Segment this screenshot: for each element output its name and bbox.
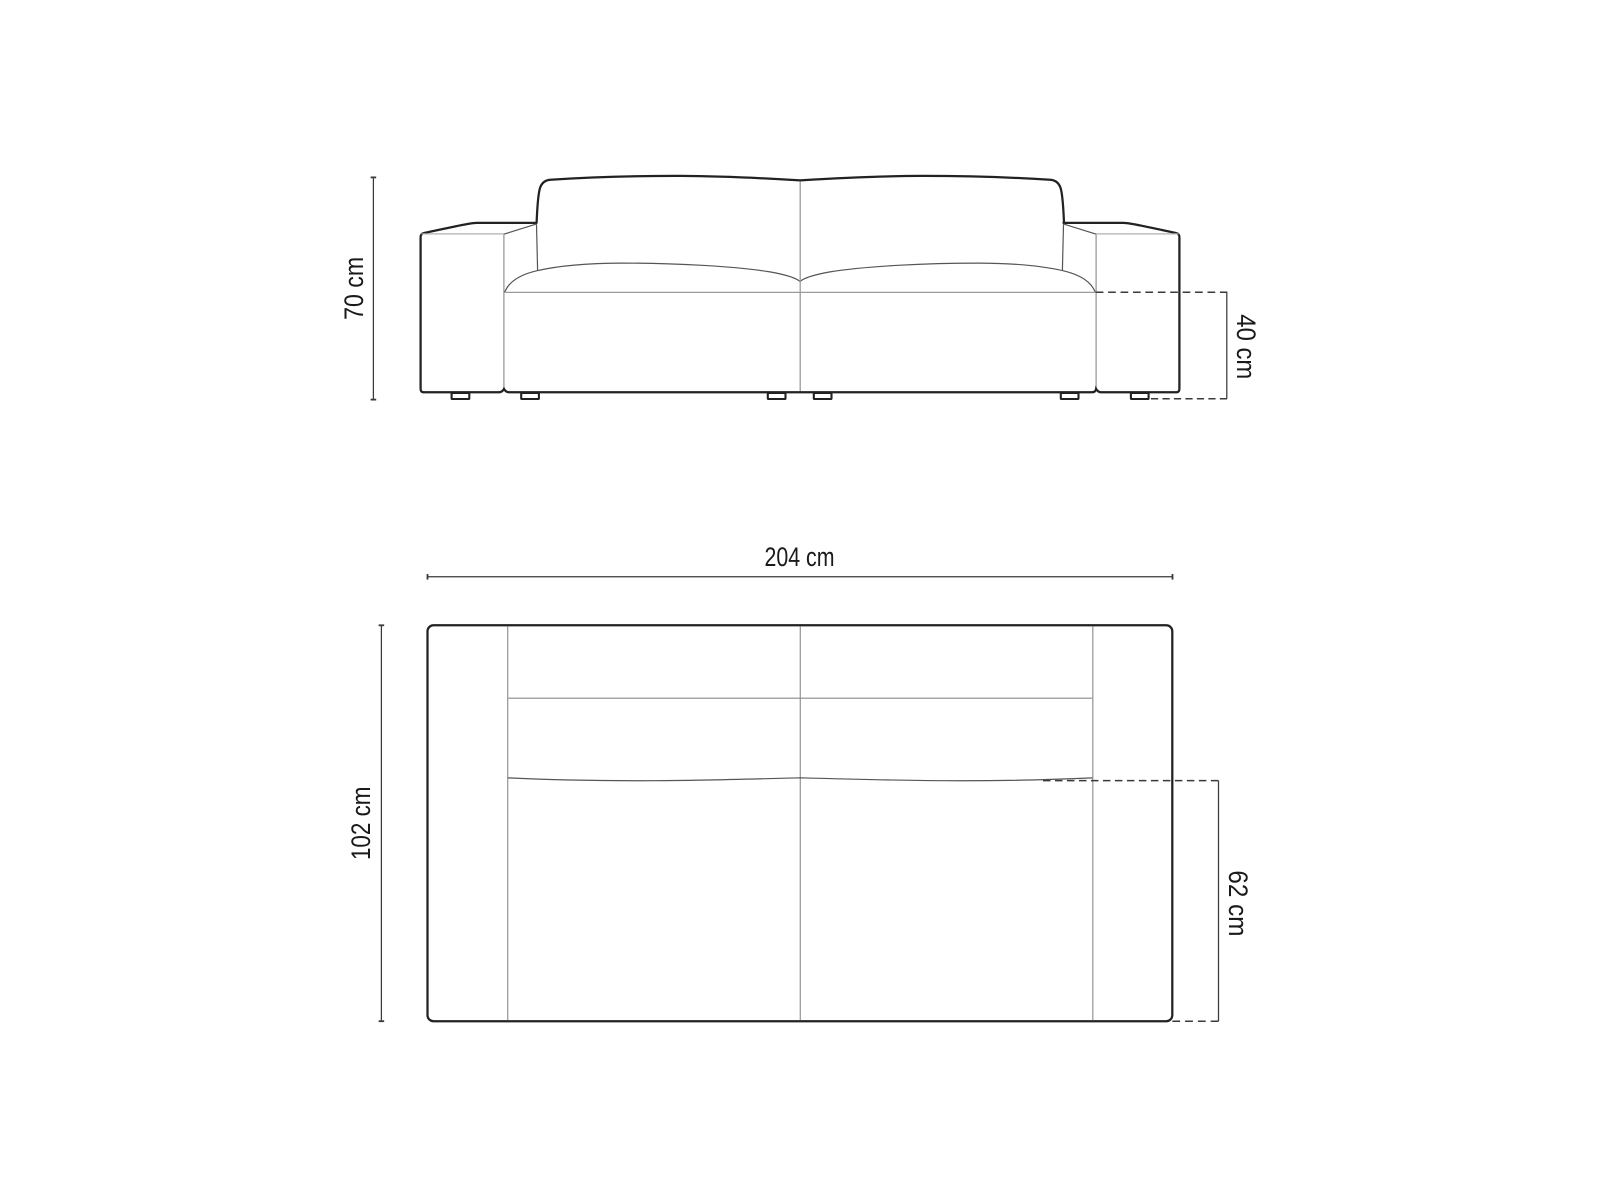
svg-text:62 cm: 62 cm — [1223, 870, 1253, 936]
svg-text:102 cm: 102 cm — [346, 787, 376, 861]
svg-text:40 cm: 40 cm — [1231, 314, 1261, 379]
svg-text:70 cm: 70 cm — [339, 257, 369, 320]
svg-text:204 cm: 204 cm — [765, 542, 835, 572]
